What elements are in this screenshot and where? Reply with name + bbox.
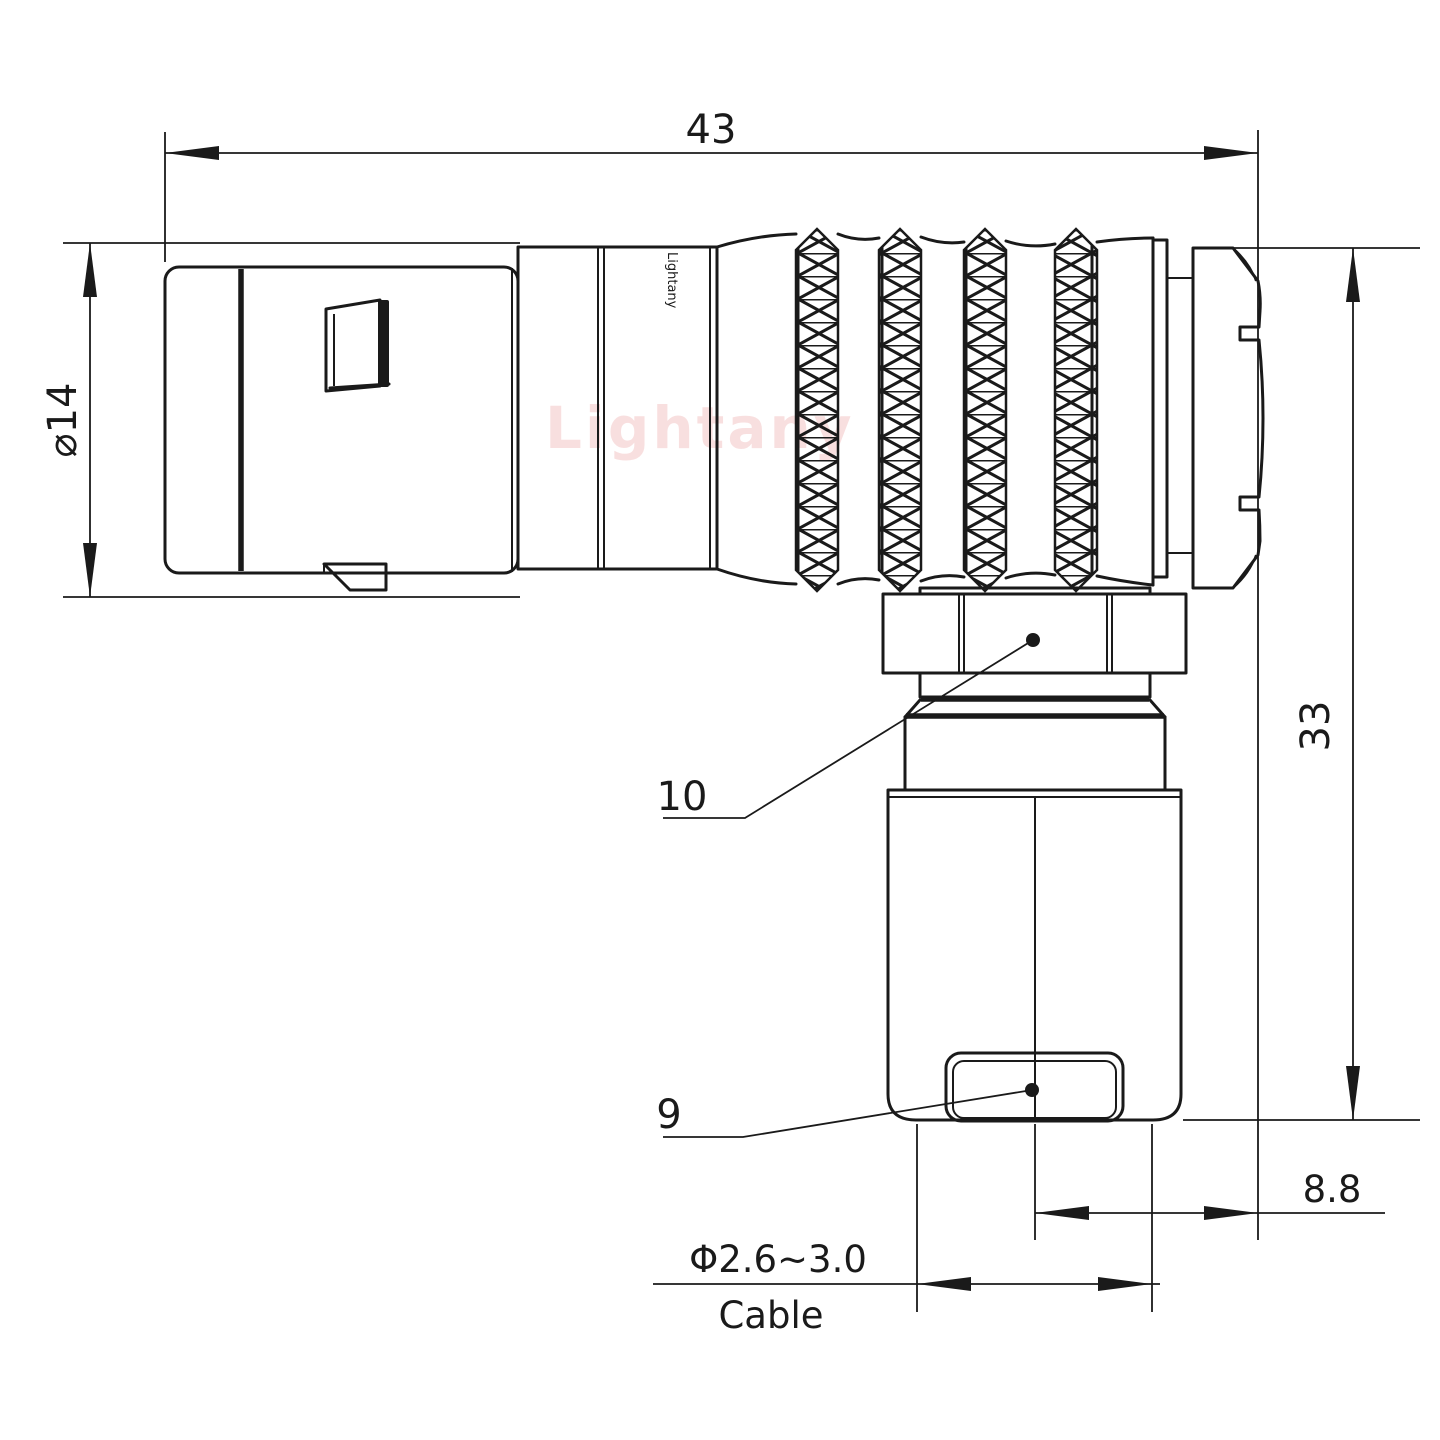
front-cap bbox=[165, 267, 518, 573]
dim-front-diameter-text: ⌀14 bbox=[40, 383, 86, 458]
dim-overall-length-text: 43 bbox=[686, 107, 737, 153]
dim-overall-height-text: 33 bbox=[1293, 701, 1339, 752]
knurl-band-2 bbox=[879, 229, 921, 591]
knurl-band-1 bbox=[796, 229, 838, 591]
dimension-front-diameter: ⌀14 bbox=[40, 243, 520, 597]
dim-cable-range-text: Φ2.6~3.0 bbox=[689, 1238, 867, 1281]
part-ref-9: 9 bbox=[656, 1083, 1039, 1138]
part-ref-9-text: 9 bbox=[656, 1092, 681, 1138]
bottom-notch bbox=[324, 564, 386, 590]
drawing-canvas: Lightany Lightany bbox=[0, 0, 1440, 1440]
dimension-cable: Φ2.6~3.0 Cable bbox=[653, 1124, 1160, 1337]
part-ref-10-text: 10 bbox=[657, 774, 708, 820]
dim-back-offset-text: 8.8 bbox=[1303, 1168, 1362, 1211]
technical-drawing: Lightany Lightany bbox=[0, 0, 1440, 1440]
washer-strip bbox=[1153, 240, 1193, 577]
keying-tab bbox=[326, 300, 389, 391]
part-ref-10: 10 bbox=[657, 633, 1040, 820]
mid-cylinder bbox=[905, 717, 1165, 790]
clamp-housing bbox=[888, 790, 1181, 1121]
knurl-band-3 bbox=[964, 229, 1006, 591]
knurl-band-4 bbox=[1055, 229, 1097, 591]
connector-vertical-body bbox=[883, 588, 1186, 1121]
back-nut bbox=[1193, 248, 1263, 588]
dimension-overall-height: 33 bbox=[1183, 248, 1420, 1120]
dimension-back-offset: 8.8 bbox=[1035, 1124, 1385, 1240]
body-brand-label: Lightany bbox=[664, 252, 679, 309]
dim-cable-word-text: Cable bbox=[718, 1294, 823, 1337]
